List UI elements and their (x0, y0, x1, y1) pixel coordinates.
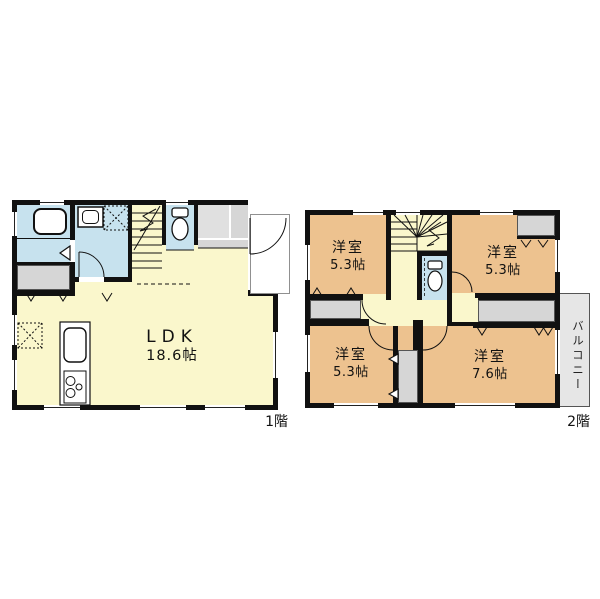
opening-marks-1f (26, 293, 112, 301)
floor2-caption: 2階 (542, 411, 590, 431)
bedroom2-label: 洋室 (463, 246, 543, 261)
floorplan-canvas: LDK 18.6帖 洋室 5.3帖 洋室 5.3帖 洋室 5.3帖 洋室 7.6… (0, 0, 600, 599)
bedroom3-label: 洋室 (311, 348, 391, 363)
bathtub-icon (17, 209, 70, 239)
stove-icon (64, 371, 86, 403)
ldk-label: LDK (112, 329, 232, 347)
kitchen-sink-icon (64, 328, 86, 362)
balcony-label: バルコニー (562, 308, 586, 404)
door-arcs-2f (362, 272, 472, 350)
kitchen-counter-icon (60, 322, 90, 405)
washing-machine-space-icon (104, 206, 128, 230)
washroom-door-arc (79, 252, 104, 277)
stairs-icon (132, 206, 162, 268)
washbasin-icon (78, 207, 103, 227)
refrigerator-space-icon (18, 323, 42, 348)
bedroom2-size: 5.3帖 (463, 264, 543, 278)
bedroom4-size: 7.6帖 (450, 368, 530, 382)
floor1-caption: 1階 (240, 411, 288, 431)
winder-stairs-icon (391, 215, 447, 251)
bathroom-folding-door-icon (60, 246, 70, 260)
ldk-size-label: 18.6帖 (112, 349, 232, 364)
toilet-icon (166, 208, 194, 250)
entrance-door-arc (250, 218, 286, 254)
toilet-icon-2f (425, 258, 443, 296)
bedroom3-size: 5.3帖 (311, 366, 391, 380)
bedroom4-label: 洋室 (450, 350, 530, 365)
fixtures-overlay (0, 0, 600, 599)
bedroom1-size: 5.3帖 (308, 259, 388, 273)
bedroom1-label: 洋室 (308, 241, 388, 256)
